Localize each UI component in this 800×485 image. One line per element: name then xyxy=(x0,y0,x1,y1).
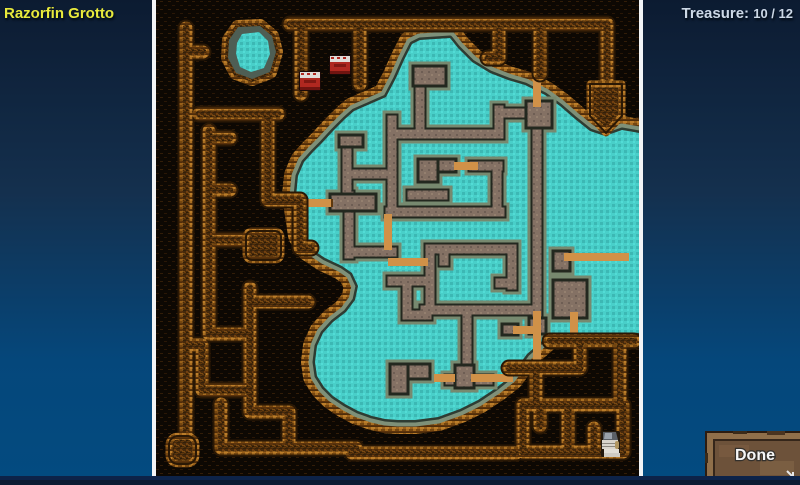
svg-text:Done: Done xyxy=(735,447,775,464)
